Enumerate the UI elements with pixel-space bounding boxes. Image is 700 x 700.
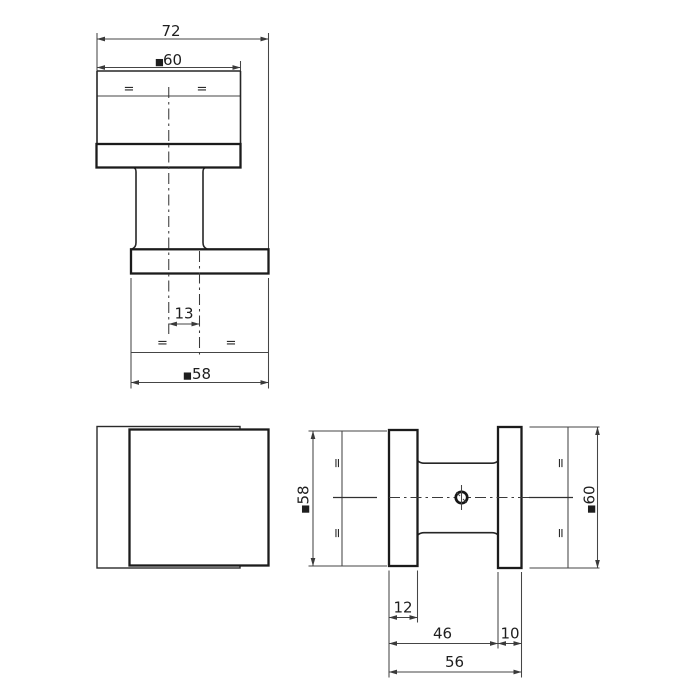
screw-hole-icon bbox=[456, 485, 467, 510]
dim-label-knob-face-group: ■ 58 bbox=[295, 485, 313, 513]
dim-label-knob-depth: 46 bbox=[433, 625, 452, 643]
equality-mark: = bbox=[157, 336, 168, 351]
dim-label-knob-face: 58 bbox=[295, 485, 313, 504]
drawing-svg: 72 ■ 60 = = 13 = = ■ 58 bbox=[0, 0, 700, 700]
technical-drawing: 72 ■ 60 = = 13 = = ■ 58 bbox=[0, 0, 700, 700]
equality-mark: = bbox=[197, 82, 208, 97]
squareness-symbol: ■ bbox=[300, 504, 311, 513]
squareness-symbol: ■ bbox=[586, 504, 597, 513]
dim-label-knob-width: 58 bbox=[192, 365, 211, 383]
dim-label-center-offset: 13 bbox=[174, 305, 193, 323]
equality-mark-group: = bbox=[554, 458, 569, 469]
top-view: 72 ■ 60 = = 13 = = ■ 58 bbox=[97, 22, 269, 389]
equality-mark: = bbox=[226, 336, 237, 351]
equality-mark-group: = bbox=[330, 458, 345, 469]
dim-label-rose-thickness: 10 bbox=[500, 625, 519, 643]
knob-face-front-outline bbox=[130, 430, 269, 566]
equality-mark: = bbox=[330, 458, 345, 469]
dim-label-rose-width: 60 bbox=[163, 51, 182, 69]
neck-edge bbox=[132, 168, 137, 250]
equality-mark-group: = bbox=[554, 528, 569, 539]
squareness-symbol: ■ bbox=[183, 370, 192, 381]
equality-mark: = bbox=[554, 458, 569, 469]
dim-label-knob-thickness: 12 bbox=[393, 599, 412, 617]
equality-mark-group: = bbox=[330, 528, 345, 539]
equality-mark: = bbox=[554, 528, 569, 539]
front-view bbox=[97, 427, 269, 569]
equality-mark: = bbox=[330, 528, 345, 539]
neck-edge bbox=[418, 533, 498, 535]
dim-label-overall-depth: 56 bbox=[445, 653, 464, 671]
neck-edge bbox=[418, 461, 498, 463]
dim-label-overall-width: 72 bbox=[161, 22, 180, 40]
dim-label-rose-face: 60 bbox=[581, 485, 599, 504]
equality-mark: = bbox=[124, 82, 135, 97]
neck-edge bbox=[203, 168, 208, 250]
dim-label-rose-face-group: ■ 60 bbox=[581, 485, 599, 513]
side-view: ■ 58 ■ 60 = = = = 12 46 10 56 bbox=[295, 427, 600, 678]
